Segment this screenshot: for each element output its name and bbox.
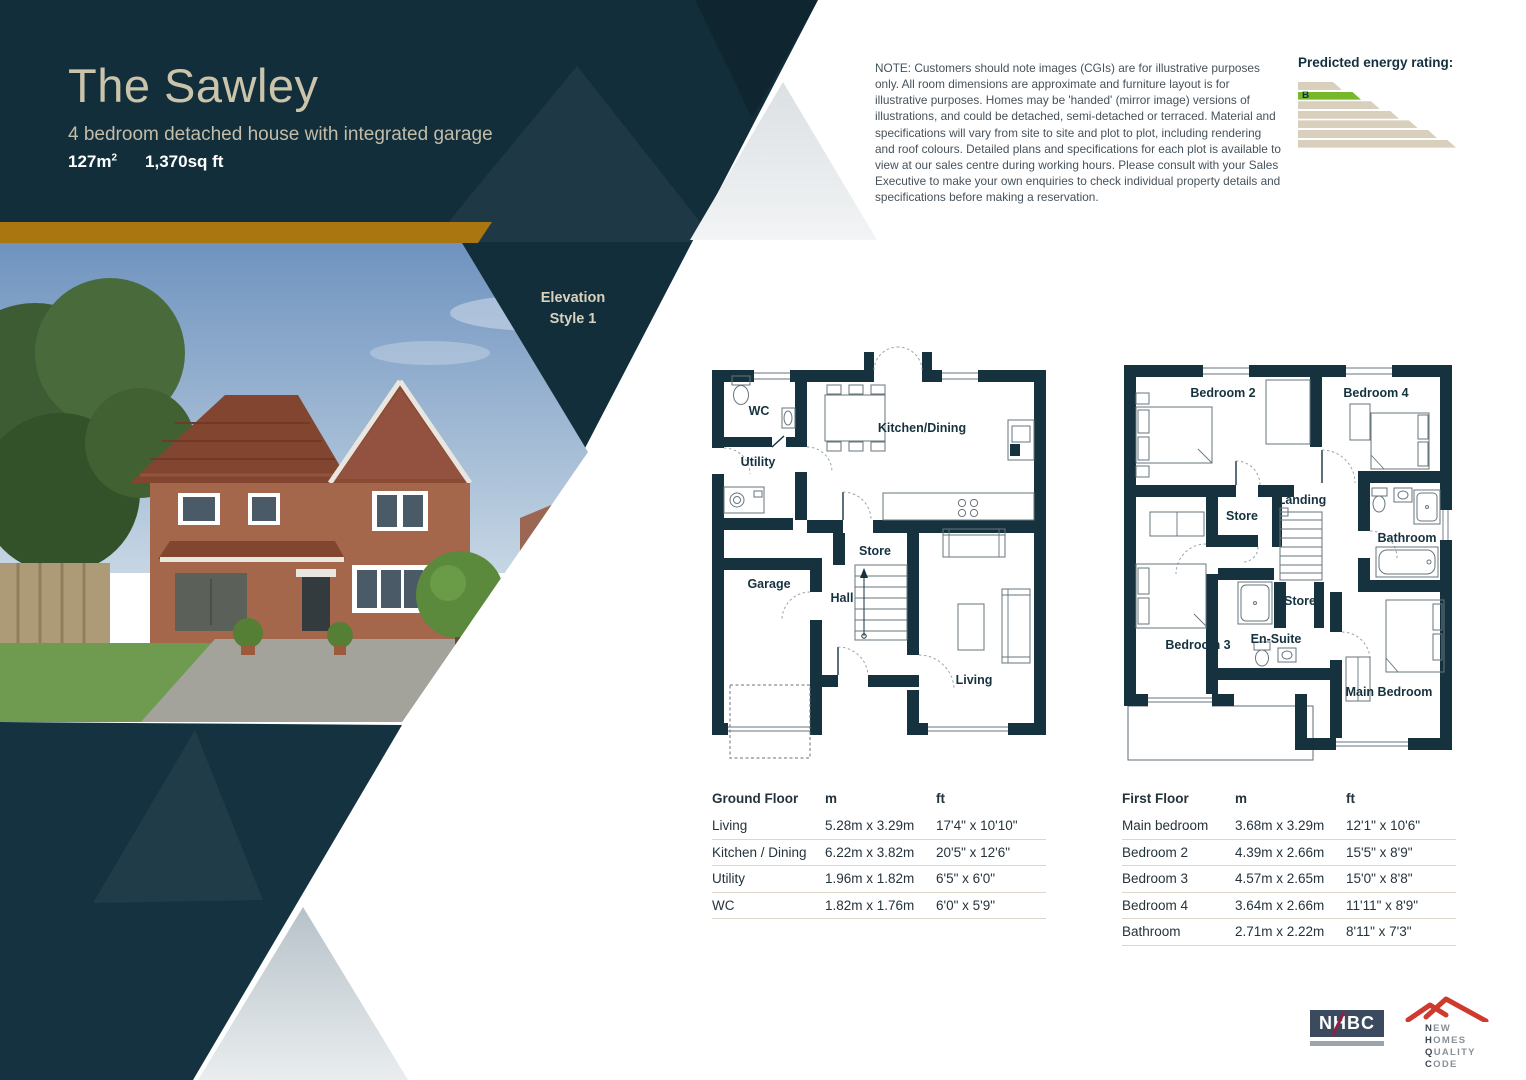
table-row: Kitchen / Dining 6.22m x 3.82m 20'5" x 1… xyxy=(712,840,1046,867)
first-floor-plan: Bedroom 2 Bedroom 4 Store Landing Bathro… xyxy=(1118,352,1464,764)
room-label-bathroom: Bathroom xyxy=(1377,531,1436,545)
cell-m: 2.71m x 2.22m xyxy=(1235,924,1346,939)
room-label-main-bedroom: Main Bedroom xyxy=(1346,685,1433,699)
energy-rating-title: Predicted energy rating: xyxy=(1298,55,1453,70)
table-row: Bedroom 2 4.39m x 2.66m 15'5" x 8'9" xyxy=(1122,840,1456,867)
page-subtitle: 4 bedroom detached house with integrated… xyxy=(68,124,493,146)
cell-ft: 17'4" x 10'10" xyxy=(936,818,1046,833)
table-row: Living 5.28m x 3.29m 17'4" x 10'10" xyxy=(712,813,1046,840)
area-imperial: 1,370sq ft xyxy=(145,152,223,171)
nhbc-logo: NHBC xyxy=(1310,1010,1384,1037)
energy-bar xyxy=(1298,82,1342,90)
cell-ft: 15'5" x 8'9" xyxy=(1346,845,1456,860)
cell-m: 4.39m x 2.66m xyxy=(1235,845,1346,860)
area-metric: 127m xyxy=(68,152,111,171)
cell-m: 1.82m x 1.76m xyxy=(825,898,936,913)
energy-bar xyxy=(1298,120,1418,128)
energy-bar xyxy=(1298,101,1380,109)
col-ft: ft xyxy=(936,791,1046,806)
room-label-bedroom4: Bedroom 4 xyxy=(1343,386,1408,400)
room-label-kitchen: Kitchen/Dining xyxy=(878,421,966,435)
energy-bars: B xyxy=(1298,82,1468,149)
col-ft: ft xyxy=(1346,791,1456,806)
room-label-ensuite: En-Suite xyxy=(1251,632,1302,646)
cell-m: 5.28m x 3.29m xyxy=(825,818,936,833)
energy-bar: B xyxy=(1298,92,1361,100)
cell-ft: 6'0" x 5'9" xyxy=(936,898,1046,913)
cell-room: Living xyxy=(712,818,825,833)
area-stats: 127m21,370sq ft xyxy=(68,152,223,172)
cell-m: 6.22m x 3.82m xyxy=(825,845,936,860)
page-title: The Sawley xyxy=(68,58,319,113)
elevation-line1: Elevation xyxy=(498,288,648,309)
cell-room: Bathroom xyxy=(1122,924,1235,939)
brochure-page: The Sawley 4 bedroom detached house with… xyxy=(0,0,1526,1080)
room-label-utility: Utility xyxy=(741,455,776,469)
nhqc-roof-icon xyxy=(1398,990,1493,1022)
nhqc-word: HOMES xyxy=(1425,1035,1508,1047)
table-header-row: First Floor m ft xyxy=(1122,786,1456,813)
room-label-bedroom2: Bedroom 2 xyxy=(1190,386,1255,400)
energy-bar xyxy=(1298,130,1437,138)
room-label-bedroom3: Bedroom 3 xyxy=(1165,638,1230,652)
cell-ft: 12'1" x 10'6" xyxy=(1346,818,1456,833)
room-label-store2: Store xyxy=(1284,594,1316,608)
cell-m: 3.64m x 2.66m xyxy=(1235,898,1346,913)
room-label-landing: Landing xyxy=(1278,493,1327,507)
table-row: Bedroom 3 4.57m x 2.65m 15'0" x 8'8" xyxy=(1122,866,1456,893)
room-label-wc: WC xyxy=(749,404,770,418)
ground-floor-table: Ground Floor m ft Living 5.28m x 3.29m 1… xyxy=(712,786,1046,919)
table-row: Bedroom 4 3.64m x 2.66m 11'11" x 8'9" xyxy=(1122,893,1456,920)
cell-room: Bedroom 4 xyxy=(1122,898,1235,913)
table-title: Ground Floor xyxy=(712,791,825,806)
table-header-row: Ground Floor m ft xyxy=(712,786,1046,813)
energy-rating-letter: B xyxy=(1302,90,1309,101)
cell-ft: 11'11" x 8'9" xyxy=(1346,898,1456,913)
nhbc-logo-text: NHBC xyxy=(1319,1013,1375,1033)
nhqc-word: NEW xyxy=(1425,1023,1508,1035)
table-row: Main bedroom 3.68m x 3.29m 12'1" x 10'6" xyxy=(1122,813,1456,840)
cell-room: Main bedroom xyxy=(1122,818,1235,833)
table-row: Bathroom 2.71m x 2.22m 8'11" x 7'3" xyxy=(1122,919,1456,946)
room-label-hall: Hall xyxy=(831,591,854,605)
elevation-line2: Style 1 xyxy=(498,309,648,330)
nhqc-logo-text: NEW HOMES QUALITY CODE xyxy=(1425,1023,1508,1071)
cell-room: Bedroom 3 xyxy=(1122,871,1235,886)
nhqc-logo: NEW HOMES QUALITY CODE xyxy=(1398,990,1508,1071)
energy-bar xyxy=(1298,140,1456,148)
col-m: m xyxy=(825,791,936,806)
elevation-style-badge: Elevation Style 1 xyxy=(498,288,648,330)
room-label-store1: Store xyxy=(1226,509,1258,523)
cell-m: 1.96m x 1.82m xyxy=(825,871,936,886)
room-label-garage: Garage xyxy=(747,577,790,591)
energy-bar xyxy=(1298,111,1399,119)
table-row: Utility 1.96m x 1.82m 6'5" x 6'0" xyxy=(712,866,1046,893)
cell-ft: 6'5" x 6'0" xyxy=(936,871,1046,886)
cell-m: 3.68m x 3.29m xyxy=(1235,818,1346,833)
cell-room: Bedroom 2 xyxy=(1122,845,1235,860)
ground-floor-plan: WC Utility Kitchen/Dining Store Hall Gar… xyxy=(712,340,1046,764)
cell-room: WC xyxy=(712,898,825,913)
room-label-living: Living xyxy=(956,673,993,687)
cell-ft: 15'0" x 8'8" xyxy=(1346,871,1456,886)
table-title: First Floor xyxy=(1122,791,1235,806)
cell-ft: 8'11" x 7'3" xyxy=(1346,924,1456,939)
cell-ft: 20'5" x 12'6" xyxy=(936,845,1046,860)
nhqc-word: CODE xyxy=(1425,1059,1508,1071)
cell-room: Kitchen / Dining xyxy=(712,845,825,860)
area-metric-sup: 2 xyxy=(111,152,117,163)
table-row: WC 1.82m x 1.76m 6'0" x 5'9" xyxy=(712,893,1046,920)
nhqc-word: QUALITY xyxy=(1425,1047,1508,1059)
nhbc-logo-underline xyxy=(1310,1041,1384,1046)
cell-m: 4.57m x 2.65m xyxy=(1235,871,1346,886)
first-floor-table: First Floor m ft Main bedroom 3.68m x 3.… xyxy=(1122,786,1456,946)
gold-accent-bar xyxy=(0,222,492,243)
cell-room: Utility xyxy=(712,871,825,886)
room-label-store: Store xyxy=(859,544,891,558)
disclaimer-note: NOTE: Customers should note images (CGIs… xyxy=(875,60,1281,205)
col-m: m xyxy=(1235,791,1346,806)
